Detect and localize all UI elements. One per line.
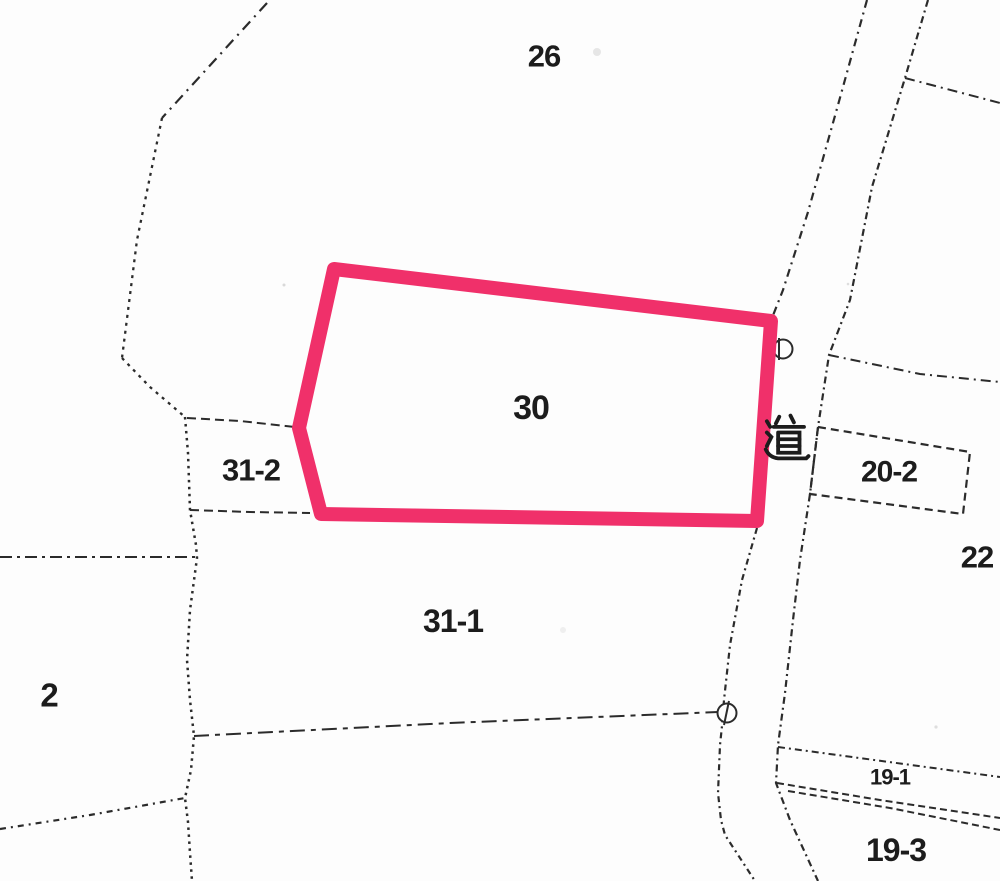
boundary-road-left-upper	[772, 0, 867, 318]
label-parcel-2: 2	[40, 677, 58, 714]
label-parcel-31-1: 31-1	[423, 603, 483, 639]
boundary-parcel-31-2-bottom	[190, 510, 310, 513]
cadastral-map: 263031-231-1220-22219-119-3	[0, 0, 1000, 881]
scan-speck-0	[593, 48, 601, 56]
label-parcel-31-2: 31-2	[222, 453, 280, 488]
scan-speck-2	[847, 283, 850, 286]
boundary-parcel-31-2-top	[187, 418, 295, 427]
boundary-east-branch	[829, 355, 1000, 382]
scan-speck-3	[934, 725, 937, 728]
cadastral-map-canvas: 263031-231-1220-22219-119-3	[0, 0, 1000, 881]
label-parcel-26: 26	[528, 39, 561, 74]
label-parcel-22: 22	[961, 540, 993, 575]
boundary-northwest-chain-upper	[162, 3, 267, 118]
label-parcel-30: 30	[513, 389, 549, 427]
scan-speck-1	[283, 284, 286, 287]
label-road-kanji-stroke	[776, 417, 779, 424]
label-parcel-19-3: 19-3	[866, 832, 926, 868]
boundary-northeast-branch	[905, 78, 1000, 103]
boundary-northwest-dotted-lower	[122, 358, 185, 417]
label-road-kanji-stroke	[791, 416, 794, 423]
boundary-southwest-diagonal	[0, 798, 185, 829]
boundary-northwest-dotted-mid	[122, 118, 162, 358]
boundary-west-vertical-dotted	[185, 417, 197, 881]
boundary-parcel-31-1-bottom	[194, 712, 718, 736]
label-parcel-19-1: 19-1	[870, 765, 911, 790]
boundary-parcel-19-1-lower-b	[788, 791, 1000, 830]
scan-speck-4	[560, 627, 566, 633]
label-road-kanji-stroke	[778, 433, 799, 453]
label-road-kanji	[766, 416, 809, 459]
label-parcel-20-2: 20-2	[861, 456, 917, 489]
